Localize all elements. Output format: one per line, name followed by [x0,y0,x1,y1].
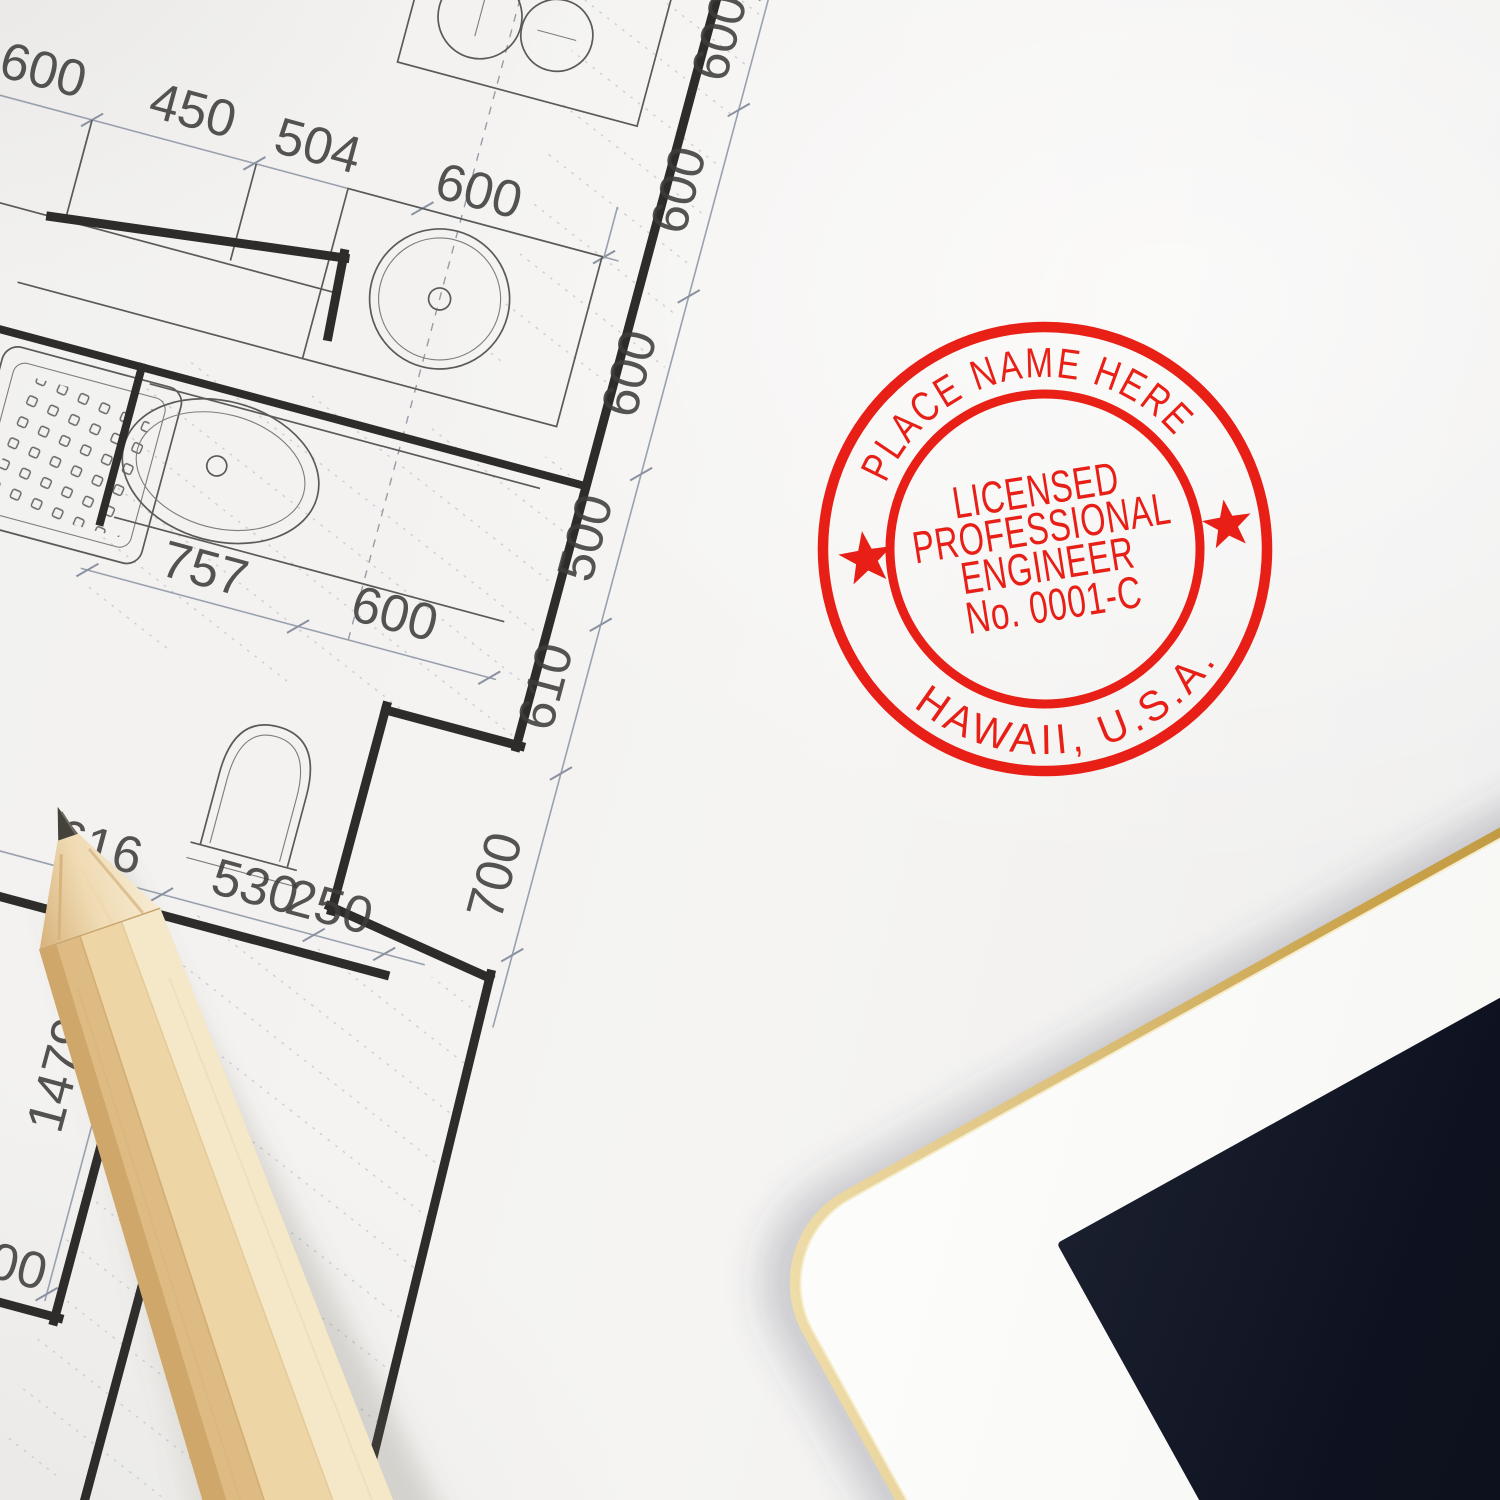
blueprint-floor-plan: 600 450 504 600 600 600 600 500 610 700 … [0,0,782,1500]
stamp-top-arc-text: PLACE NAME HERE [836,313,1208,493]
dimension-label: 600 [429,152,528,230]
dimension-label: 00 [0,1231,53,1302]
dimension-label: 700 [456,827,534,926]
engineer-stamp: PLACE NAME HERE HAWAII, U.S.A. LICENSED … [791,295,1299,803]
stamp-center-text: LICENSED PROFESSIONAL ENGINEER No. 0001-… [903,447,1186,651]
dimension-label: 600 [0,31,93,109]
toilet [200,715,322,868]
scene-graphic: 600 450 504 600 600 600 600 500 610 700 … [0,0,1500,1500]
photo-scene: 600 450 504 600 600 600 600 500 610 700 … [0,0,1500,1500]
star-icon [1199,496,1255,550]
dimension-label: 504 [269,107,368,185]
dimension-label: 250 [280,868,379,946]
stove-burner [429,0,532,68]
stamp-bottom-arc-text: HAWAII, U.S.A. [903,630,1238,785]
